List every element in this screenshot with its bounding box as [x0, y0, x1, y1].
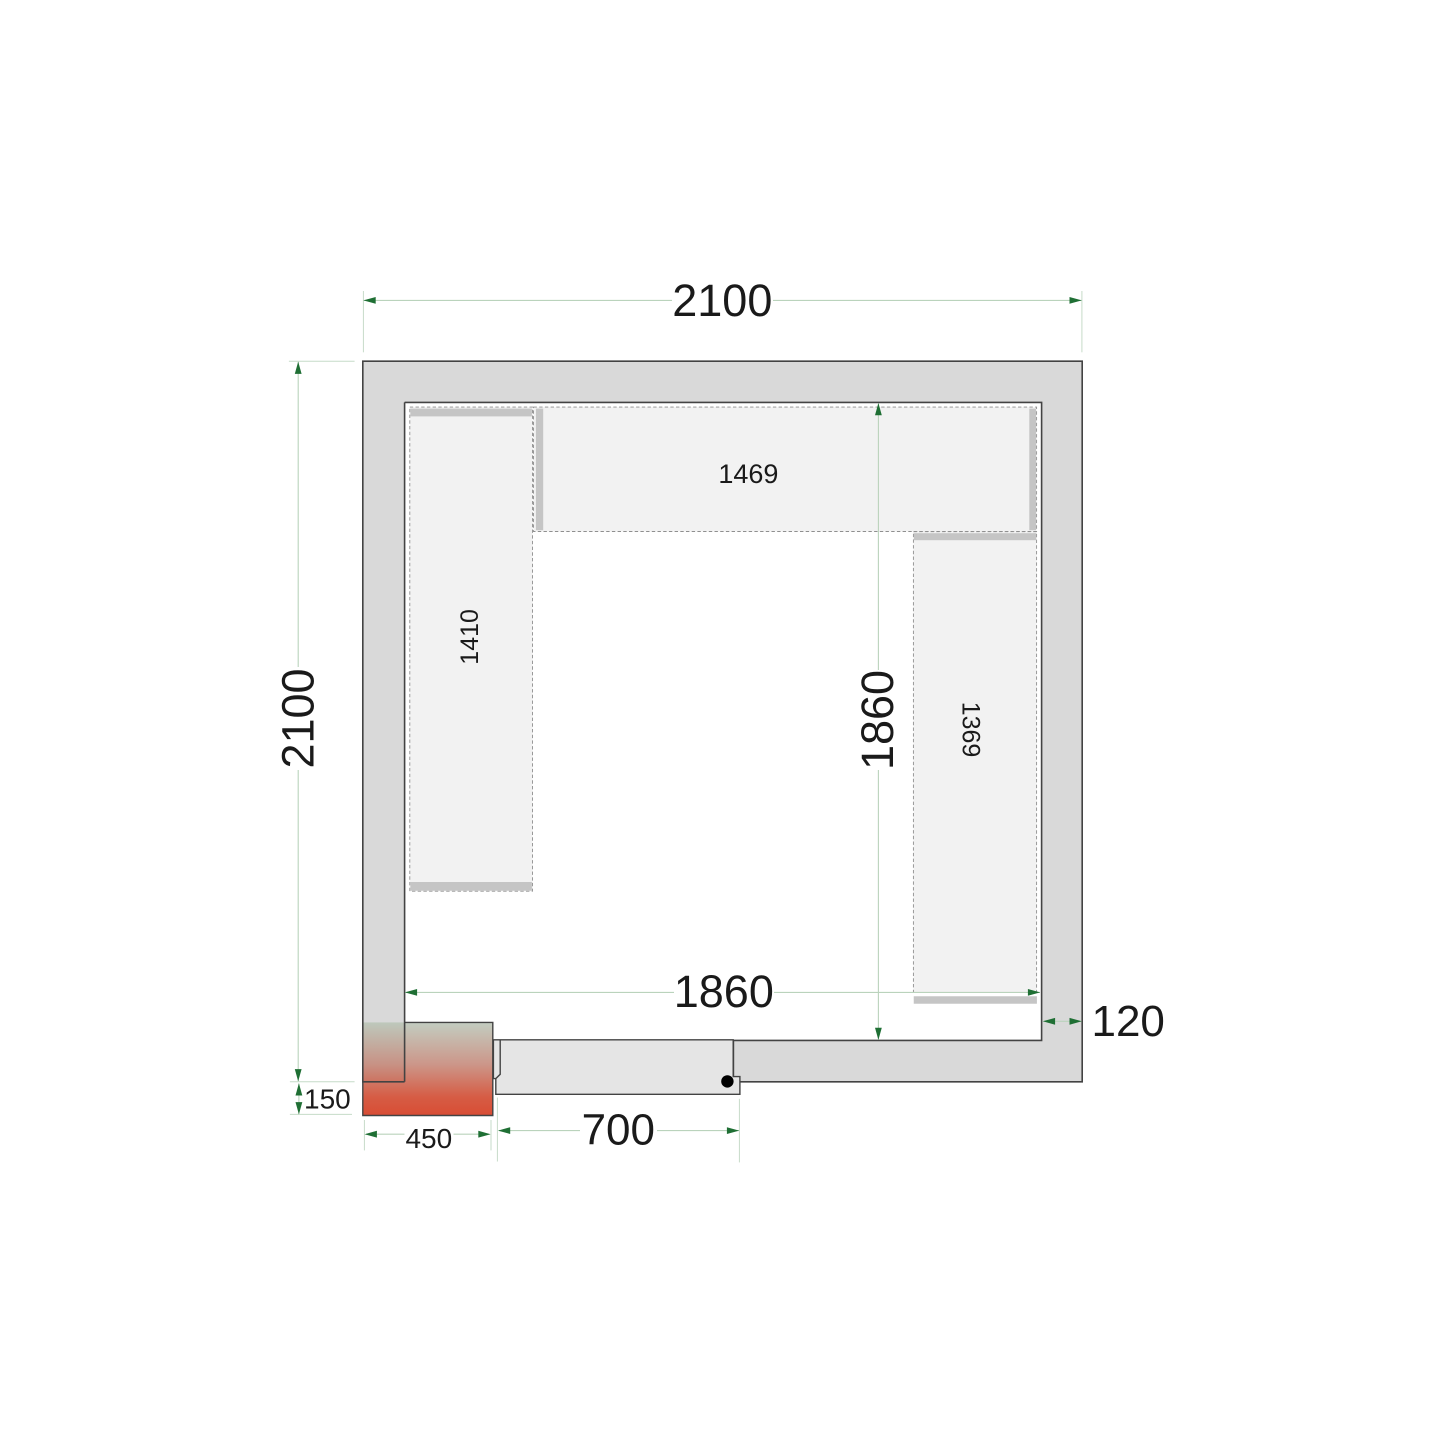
- svg-text:150: 150: [304, 1084, 351, 1115]
- svg-text:1369: 1369: [957, 702, 985, 758]
- svg-text:1860: 1860: [852, 670, 903, 770]
- svg-text:1469: 1469: [718, 459, 778, 489]
- svg-text:1860: 1860: [674, 966, 774, 1017]
- svg-text:2100: 2100: [273, 668, 324, 768]
- svg-text:1410: 1410: [456, 609, 484, 665]
- svg-text:120: 120: [1091, 997, 1164, 1046]
- svg-text:450: 450: [405, 1123, 452, 1154]
- svg-text:700: 700: [582, 1106, 655, 1155]
- svg-text:2100: 2100: [672, 275, 772, 326]
